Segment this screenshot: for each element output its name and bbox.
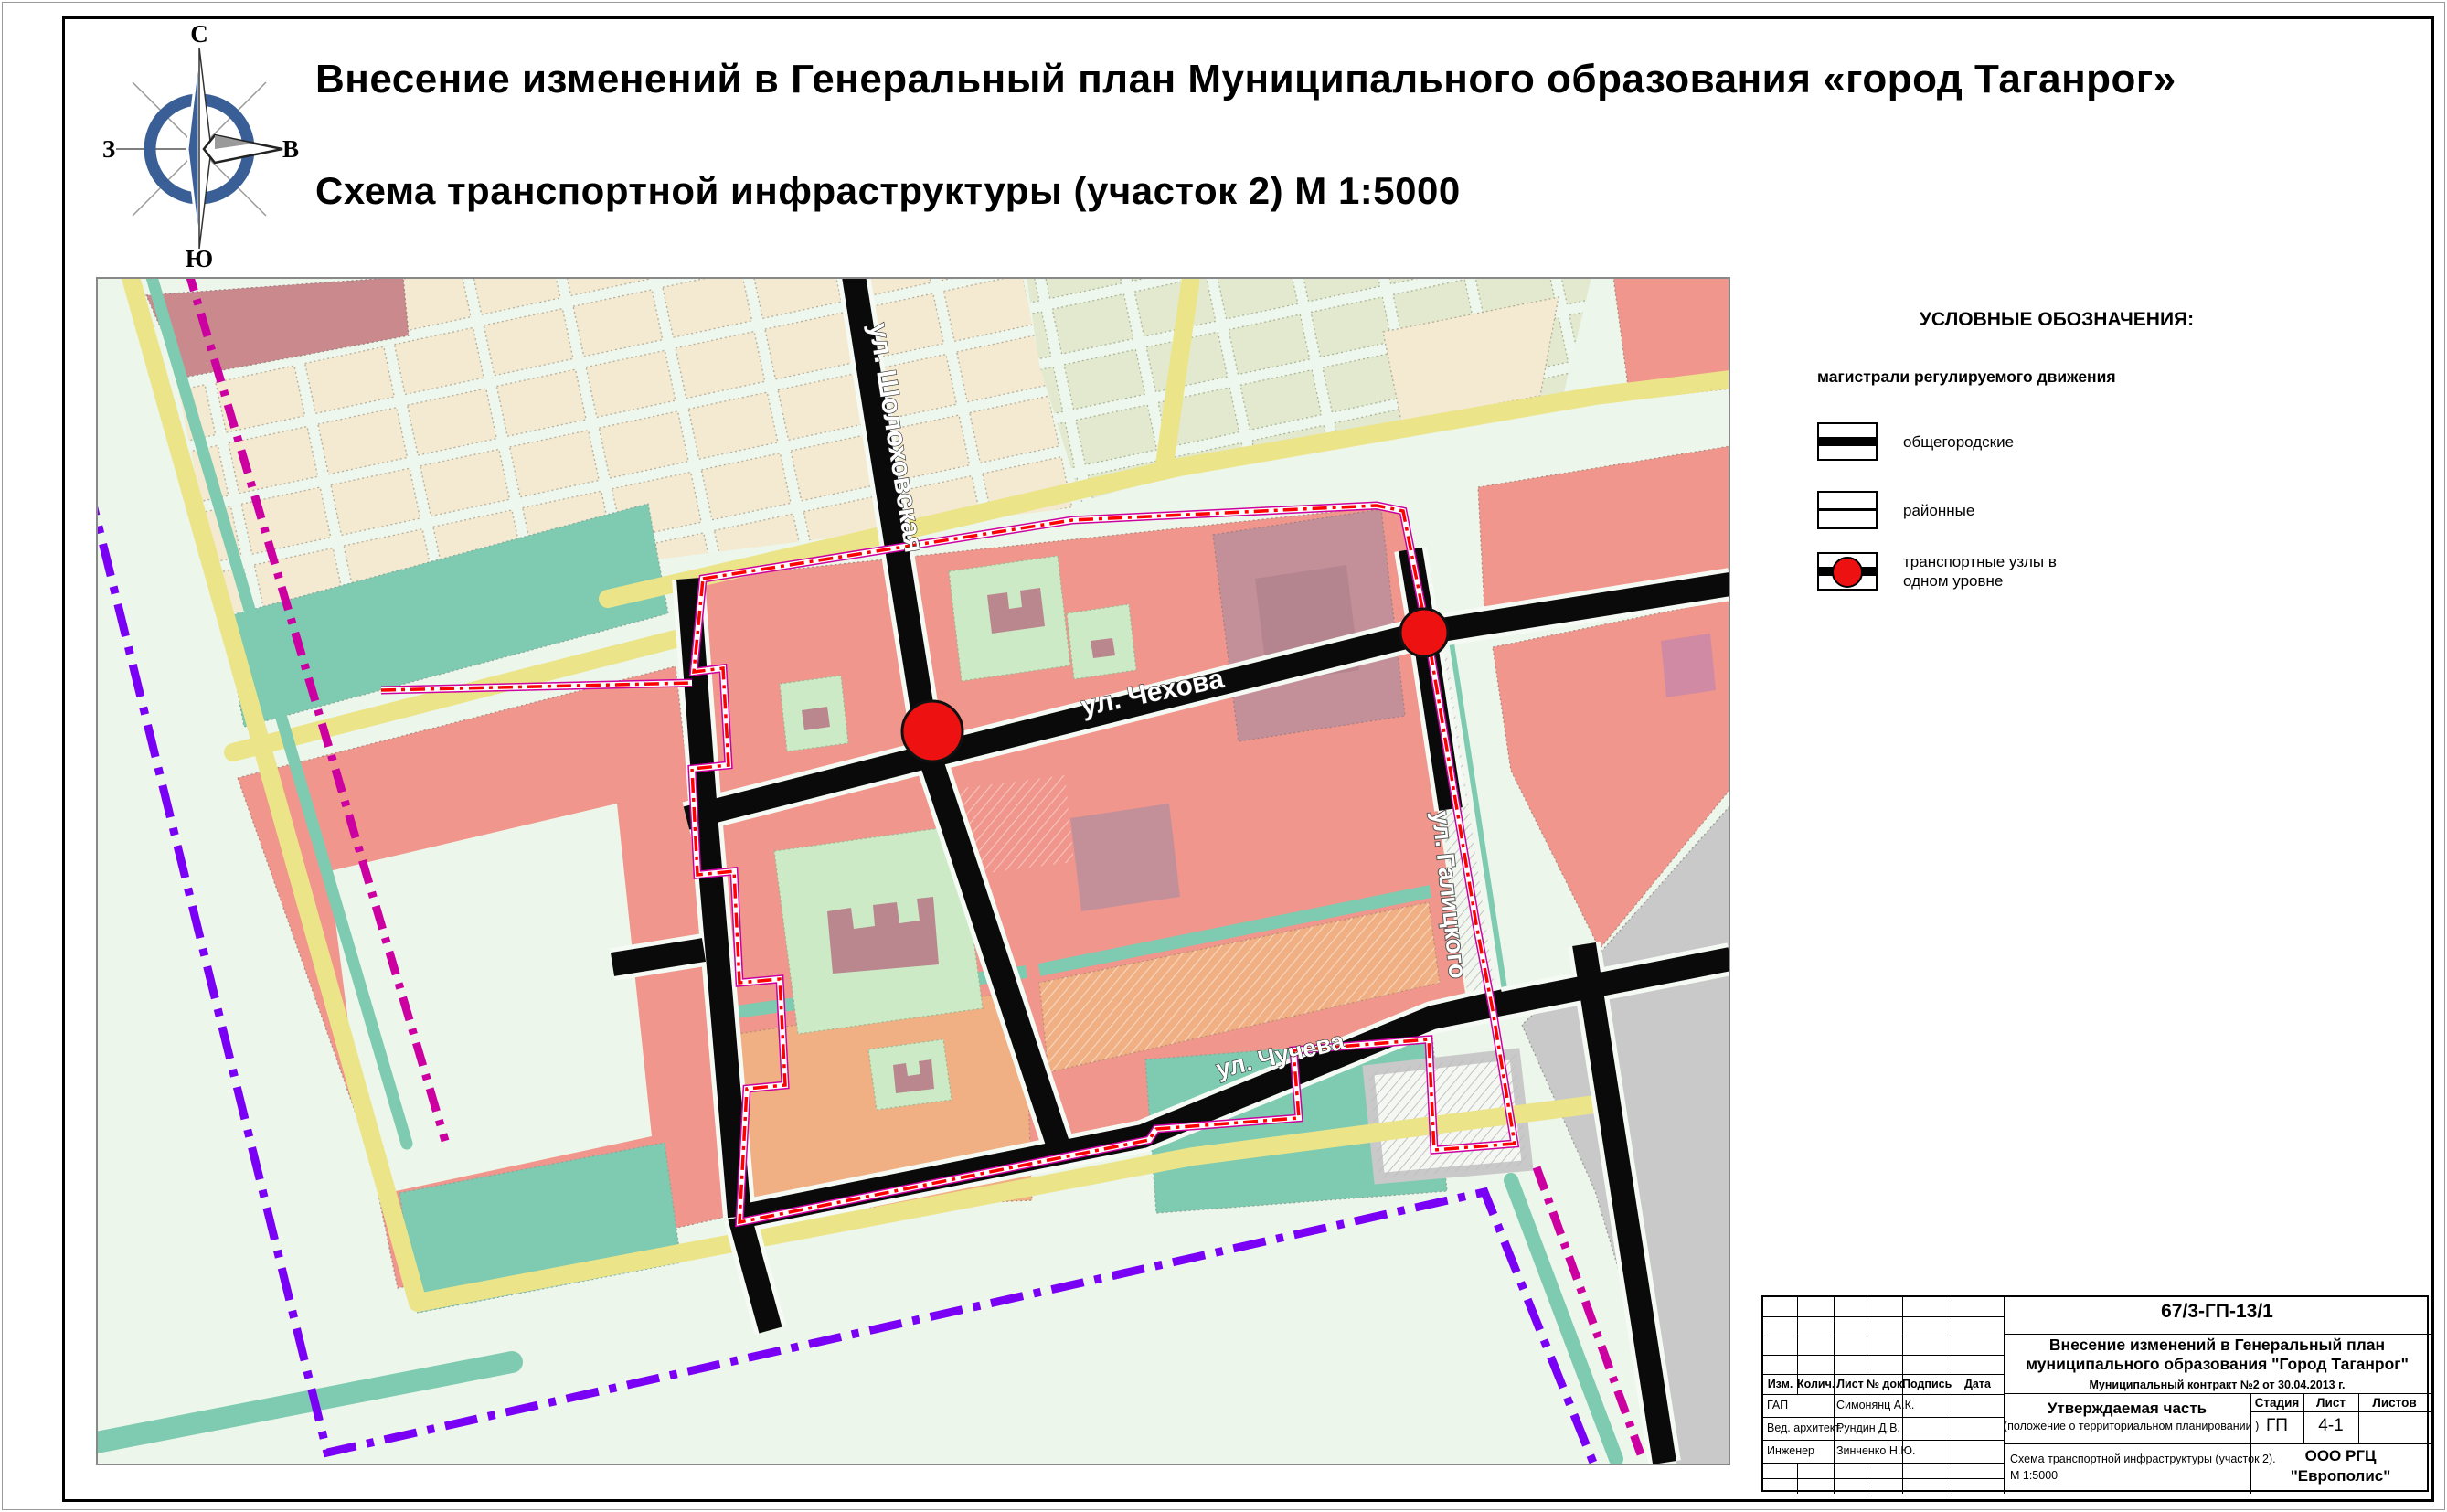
project-title-line2: муниципального образования "Город Таганр…	[2004, 1358, 2431, 1371]
drawing-sheet: С Ю З В Внесение изменений в Генеральный…	[0, 0, 2447, 1512]
name-gap: Симонянц А.К.	[1836, 1399, 1914, 1412]
legend-item-label: районные	[1903, 501, 1974, 520]
transport-node-symbol	[1817, 552, 1878, 591]
section-subtitle: (положение о территориальном планировани…	[2004, 1420, 2250, 1433]
col-data: Дата	[1952, 1378, 2004, 1391]
sheet-label: Лист	[2303, 1396, 2358, 1410]
drawing-title-line2: М 1:5000	[2010, 1469, 2058, 1483]
red-circle-icon	[1832, 557, 1863, 588]
legend-subheading: магистрали регулируемого движения	[1817, 367, 2293, 387]
legend-item-label: транспортные узлы в одном уровне	[1903, 552, 2057, 591]
col-list: Лист	[1834, 1378, 1867, 1391]
title-block: Изм. Колич. Лист № док. Подпись Дата ГАП…	[1761, 1295, 2429, 1492]
page-subtitle: Схема транспортной инфраструктуры (участ…	[315, 169, 2144, 213]
legend-heading: УСЛОВНЫЕ ОБОЗНАЧЕНИЯ:	[1846, 309, 2267, 331]
compass-rose: С Ю З В	[96, 26, 303, 269]
road-spur-west	[612, 950, 704, 964]
stage-label: Стадия	[2250, 1396, 2303, 1410]
compass-east-label: В	[282, 135, 299, 163]
role-engineer: Инженер	[1767, 1444, 1814, 1458]
map-canvas: ул. Шолоховская ул. Чехова ул. Чучева ул…	[96, 277, 1730, 1465]
section-title: Утверждаемая часть	[2004, 1401, 2250, 1415]
legend-item-district: районные	[1817, 491, 1974, 529]
project-title-line1: Внесение изменений в Генеральный план	[2004, 1338, 2431, 1352]
col-podpis: Подпись	[1902, 1378, 1952, 1391]
col-izm: Изм.	[1763, 1378, 1797, 1391]
transport-node-1	[902, 701, 963, 761]
contract: Муниципальный контракт №2 от 30.04.2013 …	[2004, 1379, 2431, 1392]
legend-item-node: транспортные узлы в одном уровне	[1817, 552, 2057, 591]
legend-item-citywide: общегородские	[1817, 422, 2014, 461]
zone-pink-small	[1661, 634, 1716, 697]
legend-item-label: общегородские	[1903, 432, 2014, 452]
sheets-label: Листов	[2358, 1396, 2431, 1410]
district-road-symbol	[1817, 491, 1878, 529]
compass-graphic: С Ю З В	[102, 26, 299, 269]
role-gap: ГАП	[1767, 1399, 1788, 1412]
company-line1: ООО РГЦ	[2250, 1449, 2431, 1463]
name-engineer: Зинченко Н.Ю.	[1836, 1444, 1915, 1458]
zone-mauve-center	[1070, 804, 1180, 911]
citywide-road-symbol	[1817, 422, 1878, 461]
col-ndok: № док.	[1867, 1378, 1902, 1391]
col-kolich: Колич.	[1797, 1378, 1834, 1391]
compass-west-label: З	[102, 135, 115, 163]
compass-south-label: Ю	[186, 245, 213, 269]
doc-number: 67/3-ГП-13/1	[2004, 1304, 2431, 1318]
stage-value: ГП	[2250, 1419, 2303, 1432]
sheet-value: 4-1	[2303, 1419, 2358, 1432]
role-architect: Вед. архитект.	[1767, 1421, 1842, 1435]
compass-north-label: С	[190, 26, 208, 48]
page-title: Внесение изменений в Генеральный план Му…	[315, 57, 2381, 102]
company-line2: "Европолис"	[2250, 1469, 2431, 1483]
name-architect: Рундин Д.В.	[1836, 1421, 1900, 1435]
drawing-title-line1: Схема транспортной инфраструктуры (участ…	[2010, 1453, 2276, 1466]
transport-node-2	[1400, 609, 1448, 656]
